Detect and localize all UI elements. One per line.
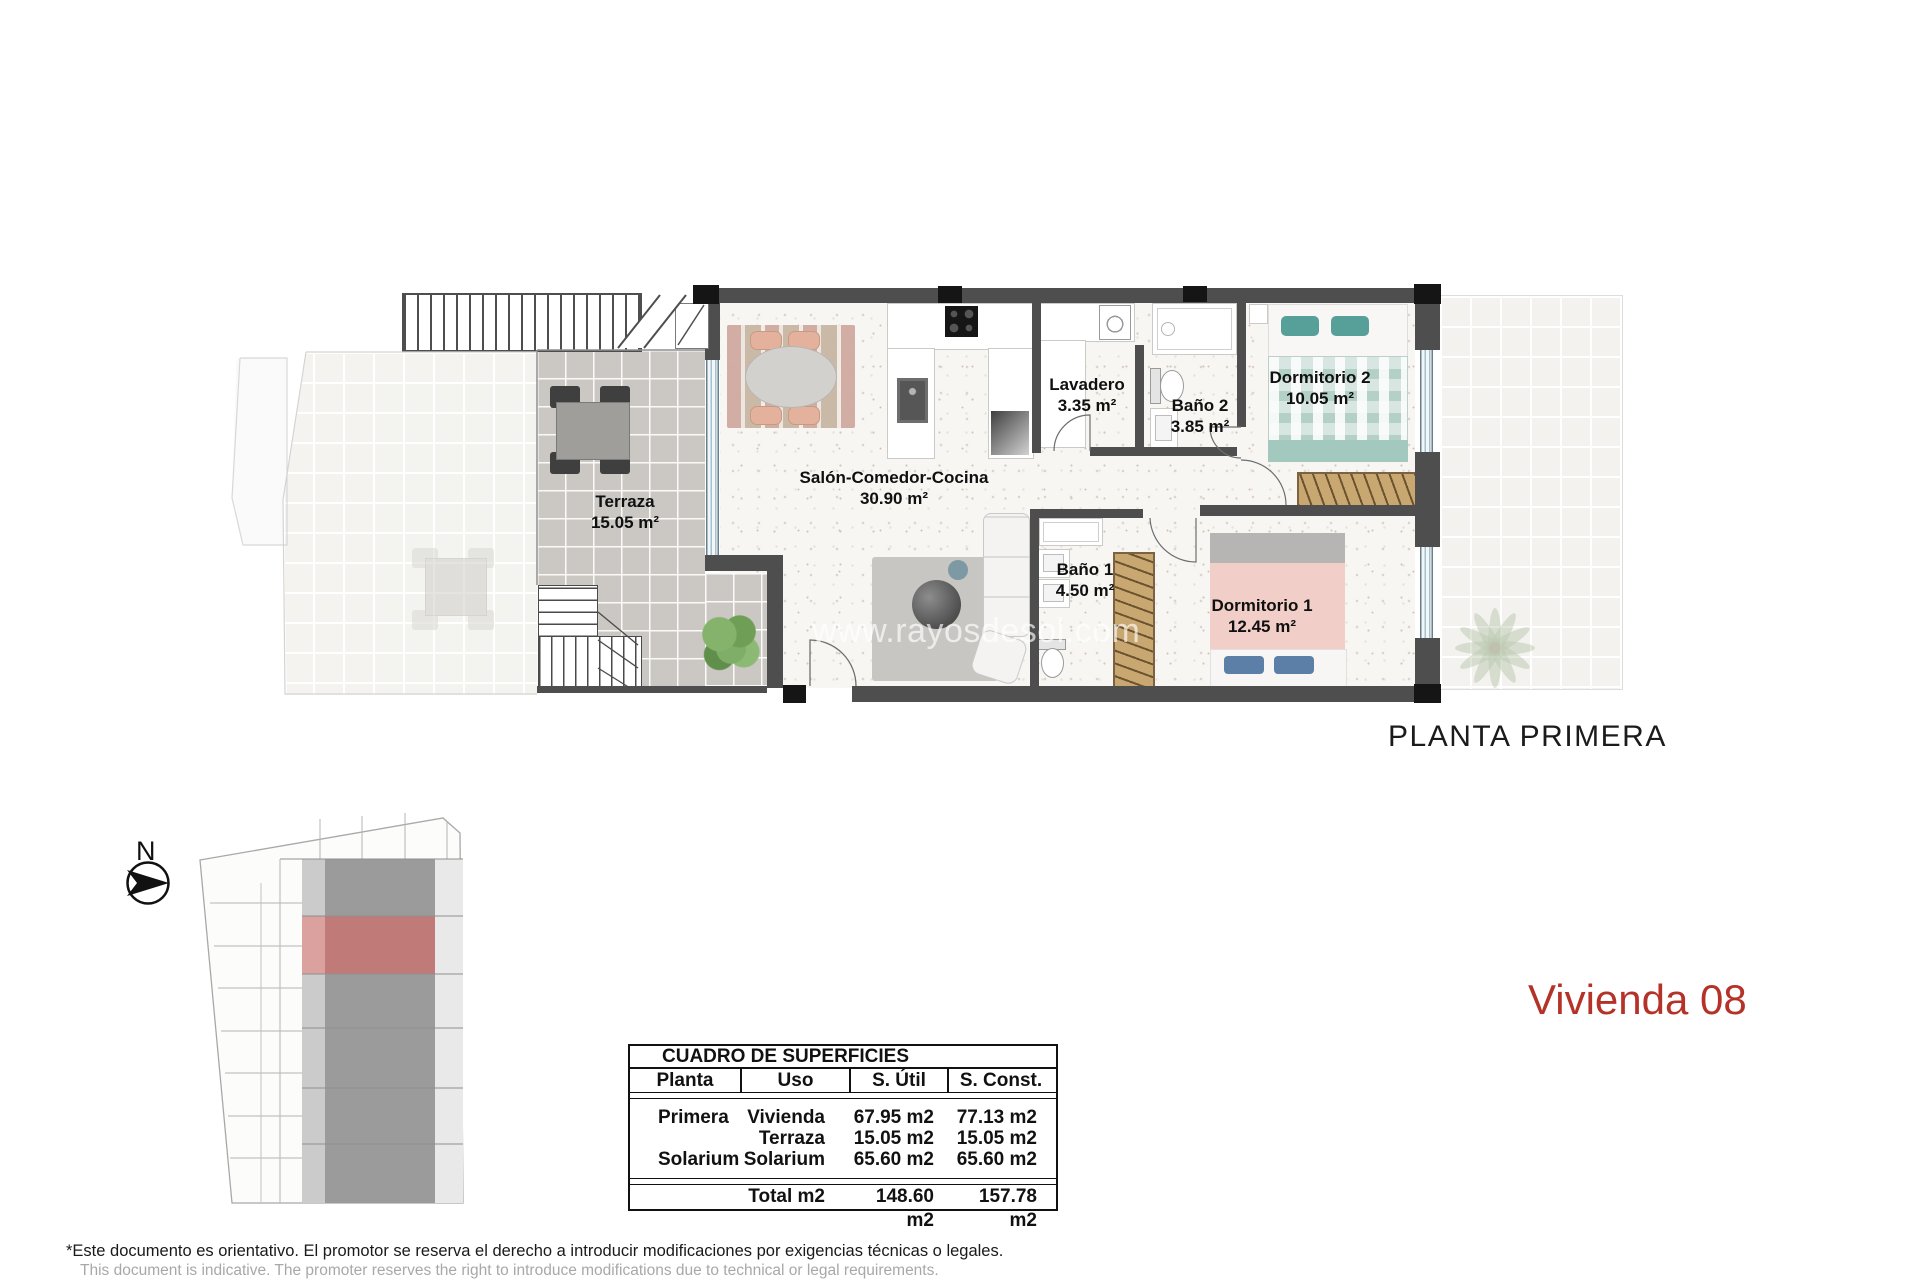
- chair-icon: [750, 406, 782, 425]
- room-name: Dormitorio 1: [1211, 596, 1312, 617]
- header-sutil: S. Útil: [849, 1069, 947, 1092]
- wall-dorm-divider: [1200, 505, 1415, 516]
- room-label-terraza: Terraza 15.05 m²: [591, 492, 659, 533]
- table-row: Solarium Solarium 65.60 m2 65.60 m2: [630, 1149, 1056, 1170]
- double-rule: [630, 1092, 1056, 1099]
- table-row: Primera Vivienda 67.95 m2 77.13 m2: [630, 1107, 1056, 1128]
- cooktop-icon: [945, 306, 978, 337]
- header-uso: Uso: [740, 1069, 849, 1092]
- stool-icon: [948, 560, 968, 580]
- column: [783, 685, 806, 703]
- site-strip-light: [302, 859, 325, 1203]
- shower-tray: [1043, 522, 1099, 542]
- pillow-icon: [1281, 316, 1319, 336]
- floor-title: PLANTA PRIMERA: [1388, 720, 1667, 754]
- surfaces-table-body: Primera Vivienda 67.95 m2 77.13 m2 Terra…: [630, 1099, 1056, 1178]
- site-strip-right: [435, 859, 463, 1203]
- oven-icon: [991, 411, 1029, 455]
- room-label-lavadero: Lavadero 3.35 m²: [1049, 375, 1125, 416]
- room-label-bano1: Baño 1 4.50 m²: [1056, 560, 1115, 601]
- column: [693, 285, 719, 304]
- watermark: www.rayosdesol.com: [812, 612, 1140, 651]
- unit-title: Vivienda 08: [1528, 976, 1747, 1024]
- neighbor-table-left: [405, 542, 505, 634]
- wall-top: [693, 288, 1441, 303]
- header-planta: Planta: [630, 1069, 740, 1092]
- site-unit-highlight-strip: [302, 916, 325, 974]
- shower-2: [1152, 303, 1237, 355]
- surfaces-table-title: CUADRO DE SUPERFICIES: [630, 1046, 1056, 1069]
- table-icon: [425, 558, 487, 616]
- window-dorm2: [1420, 350, 1433, 452]
- total-label: Total m2: [740, 1185, 849, 1209]
- floorplan-sheet: Terraza 15.05 m² Salón-Comedor-Cocina 30…: [0, 0, 1920, 1280]
- toilet-bowl-icon: [1041, 648, 1064, 678]
- disclaimer-es: *Este documento es orientativo. El promo…: [66, 1242, 1003, 1261]
- bed-foot: [1268, 440, 1408, 462]
- room-area: 15.05 m²: [591, 513, 659, 534]
- washer-icon: [1099, 305, 1131, 340]
- wall-lavadero-bano2: [1135, 345, 1144, 456]
- room-label-dormitorio1: Dormitorio 1 12.45 m²: [1211, 596, 1312, 637]
- room-area: 10.05 m²: [1269, 389, 1370, 410]
- site-unit-highlight: [325, 916, 435, 974]
- wall-jog: [705, 555, 783, 571]
- disclaimer-en: This document is indicative. The promote…: [80, 1262, 939, 1280]
- wall-entry: [767, 571, 783, 688]
- column: [1414, 684, 1441, 703]
- pillow-icon: [1224, 656, 1264, 674]
- room-name: Dormitorio 2: [1269, 368, 1370, 389]
- window-terraza-slider: [706, 360, 719, 555]
- palm-tree-icon: [1445, 598, 1545, 698]
- pillow-icon: [1331, 316, 1369, 336]
- neighbor-sliver: [232, 358, 287, 545]
- double-rule: [630, 1178, 1056, 1185]
- shower-1: [1039, 518, 1103, 546]
- table-total-row: Total m2 148.60 m2 157.78 m2: [630, 1185, 1056, 1209]
- wall-bano1-top: [1030, 509, 1143, 518]
- room-name: Salón-Comedor-Cocina: [800, 468, 989, 489]
- room-area: 30.90 m²: [800, 489, 989, 510]
- shower-head-icon: [1161, 322, 1175, 336]
- column: [938, 286, 962, 303]
- nightstand-icon: [1249, 304, 1268, 324]
- plant-icon: [702, 614, 760, 672]
- site-block-column: [325, 859, 435, 1203]
- neighbor-terrace-left: [283, 352, 537, 695]
- room-area: 12.45 m²: [1211, 617, 1312, 638]
- site-plan: N: [100, 788, 480, 1218]
- dining-table-icon: [745, 346, 837, 408]
- window-dorm1: [1420, 547, 1433, 638]
- surfaces-table-header: Planta Uso S. Útil S. Const.: [630, 1069, 1056, 1092]
- column: [1183, 286, 1207, 302]
- room-area: 4.50 m²: [1056, 581, 1115, 602]
- interior-stairs-run1: [538, 585, 598, 638]
- wall-right-b: [1415, 452, 1440, 547]
- room-name: Terraza: [591, 492, 659, 513]
- column: [1414, 284, 1441, 304]
- total-util: 148.60 m2: [849, 1185, 947, 1209]
- room-area: 3.85 m²: [1171, 417, 1230, 438]
- wall-bottom: [852, 686, 1440, 702]
- pillow-icon: [1274, 656, 1314, 674]
- wall-bano2-bottom: [1143, 447, 1237, 456]
- wall-kitchen-lavadero: [1032, 303, 1041, 453]
- room-label-dormitorio2: Dormitorio 2 10.05 m²: [1269, 368, 1370, 409]
- header-sconst: S. Const.: [947, 1069, 1053, 1092]
- wall-bano1-left: [1030, 509, 1039, 688]
- interior-stairs-run2: [538, 636, 642, 690]
- chair-icon: [788, 406, 820, 425]
- room-name: Baño 1: [1056, 560, 1115, 581]
- wall-bano2-dorm2: [1237, 303, 1246, 427]
- table-row: Terraza 15.05 m2 15.05 m2: [630, 1128, 1056, 1149]
- wall-lavadero-bottom: [1090, 447, 1137, 456]
- wall-terraza-bottom: [537, 686, 767, 693]
- room-label-bano2: Baño 2 3.85 m²: [1171, 396, 1230, 437]
- terraza-table-icon: [556, 402, 630, 460]
- bed-head: [1210, 533, 1345, 563]
- room-label-salon: Salón-Comedor-Cocina 30.90 m²: [800, 468, 989, 509]
- room-name: Baño 2: [1171, 396, 1230, 417]
- stair-landing: [675, 303, 709, 349]
- exterior-stairs: [402, 293, 642, 352]
- total-const: 157.78 m2: [947, 1185, 1053, 1209]
- room-area: 3.35 m²: [1049, 396, 1125, 417]
- kitchen-sink-icon: [897, 378, 928, 423]
- basin-icon: [1155, 415, 1172, 441]
- room-name: Lavadero: [1049, 375, 1125, 396]
- surfaces-table: CUADRO DE SUPERFICIES Planta Uso S. Útil…: [628, 1044, 1058, 1211]
